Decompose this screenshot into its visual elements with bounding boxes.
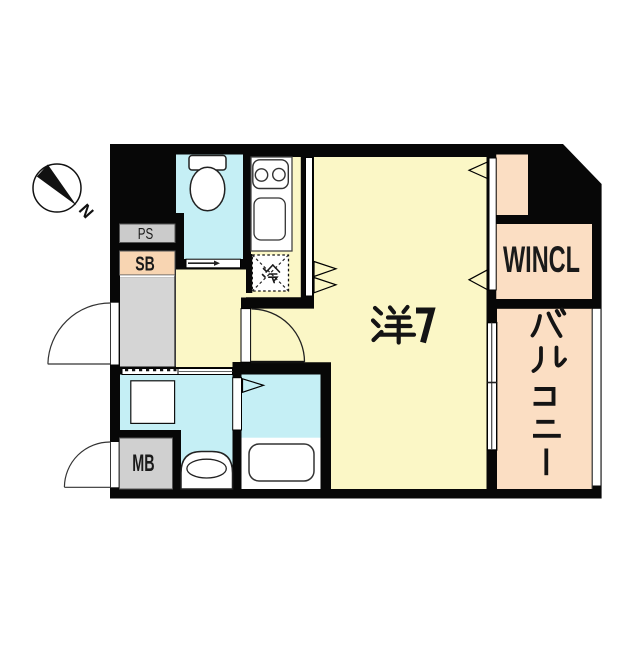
svg-text:PS: PS <box>138 226 154 243</box>
svg-text:MB: MB <box>132 450 154 477</box>
svg-text:SB: SB <box>135 253 155 276</box>
svg-text:WINCL: WINCL <box>503 239 580 280</box>
